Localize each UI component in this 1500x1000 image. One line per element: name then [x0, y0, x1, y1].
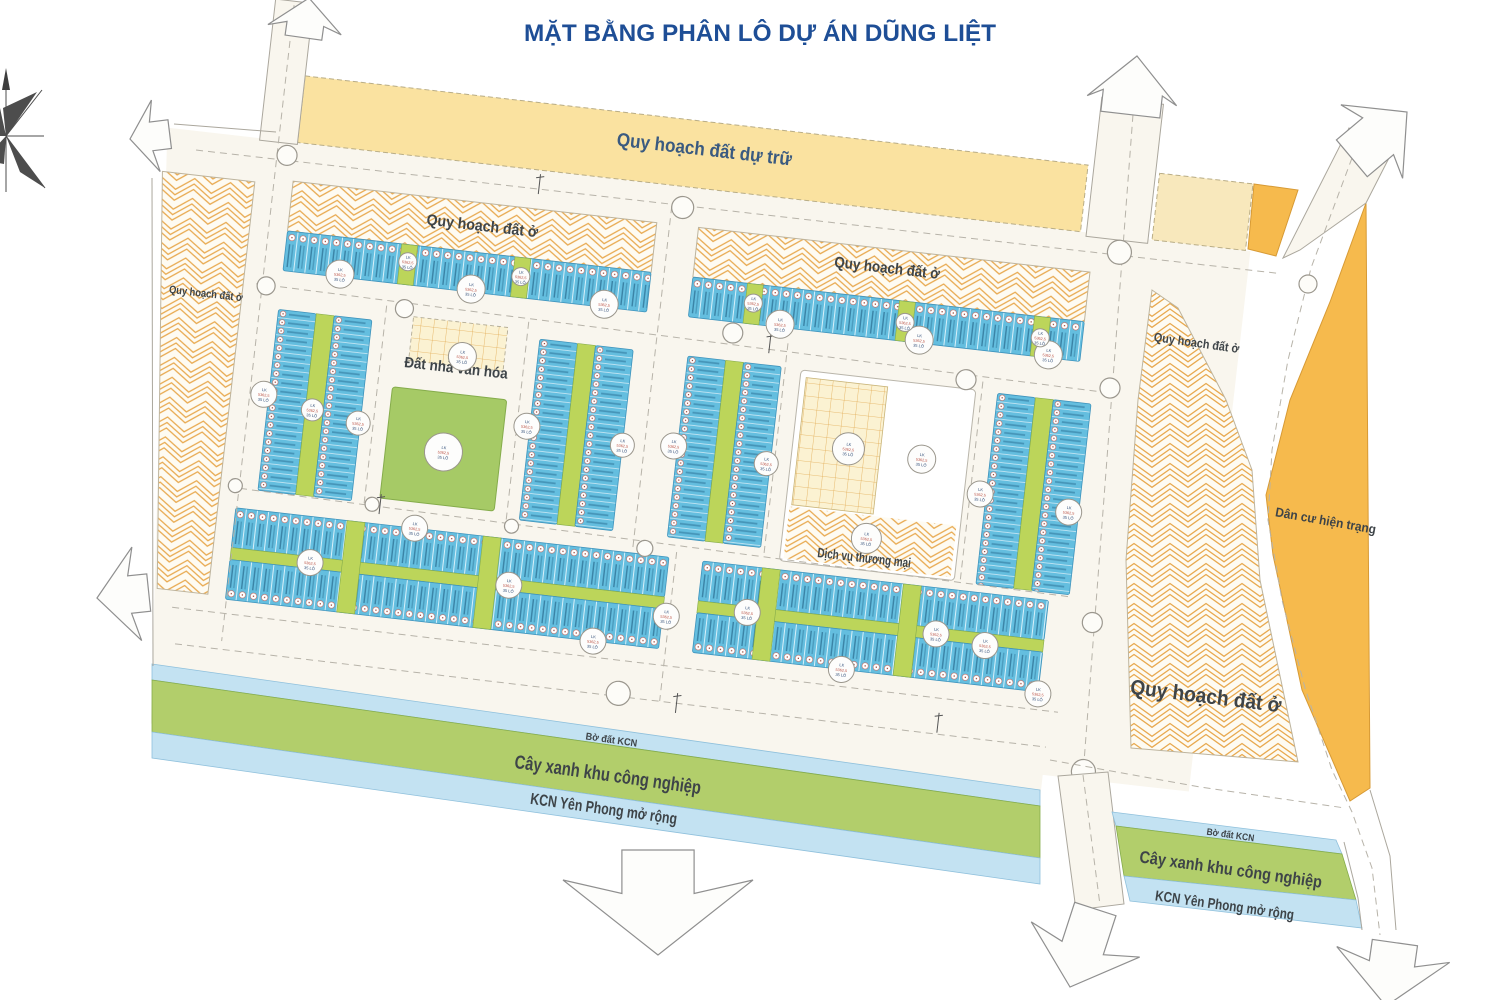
svg-text:LK: LK [525, 419, 531, 425]
svg-text:LK: LK [917, 333, 923, 339]
svg-text:LK: LK [338, 267, 344, 273]
svg-text:LK: LK [778, 317, 784, 323]
svg-text:LK: LK [1046, 348, 1052, 354]
svg-text:LK: LK [620, 438, 626, 444]
svg-text:LK: LK [839, 662, 845, 668]
svg-text:LK: LK [1038, 331, 1044, 337]
svg-text:LK: LK [507, 578, 513, 584]
svg-text:LK: LK [1036, 687, 1042, 693]
svg-text:LK: LK [262, 387, 268, 393]
svg-text:LK: LK [1066, 505, 1072, 511]
svg-text:LK: LK [308, 555, 314, 561]
svg-text:LK: LK [460, 349, 466, 355]
svg-text:LK: LK [469, 282, 475, 288]
svg-text:LK: LK [934, 627, 940, 633]
svg-text:LK: LK [846, 442, 852, 448]
svg-text:LK: LK [441, 445, 447, 451]
svg-text:LK: LK [903, 315, 909, 321]
svg-text:MẶT BẰNG PHÂN LÔ DỰ ÁN DŨNG LI: MẶT BẰNG PHÂN LÔ DỰ ÁN DŨNG LIỆT [524, 19, 996, 47]
svg-text:LK: LK [519, 269, 525, 275]
svg-text:LK: LK [745, 605, 751, 611]
svg-text:LK: LK [764, 456, 770, 462]
svg-text:LK: LK [983, 638, 989, 644]
svg-text:LK: LK [406, 254, 412, 260]
svg-text:LK: LK [602, 297, 608, 303]
svg-text:LK: LK [591, 634, 597, 640]
svg-text:LK: LK [356, 416, 362, 422]
svg-text:LK: LK [864, 531, 870, 537]
svg-text:LK: LK [978, 487, 984, 493]
svg-text:LK: LK [310, 403, 316, 409]
svg-text:LK: LK [751, 296, 757, 302]
svg-text:LK: LK [664, 609, 670, 615]
svg-text:LK: LK [671, 439, 677, 445]
svg-text:LK: LK [920, 452, 926, 458]
svg-text:LK: LK [412, 521, 418, 527]
